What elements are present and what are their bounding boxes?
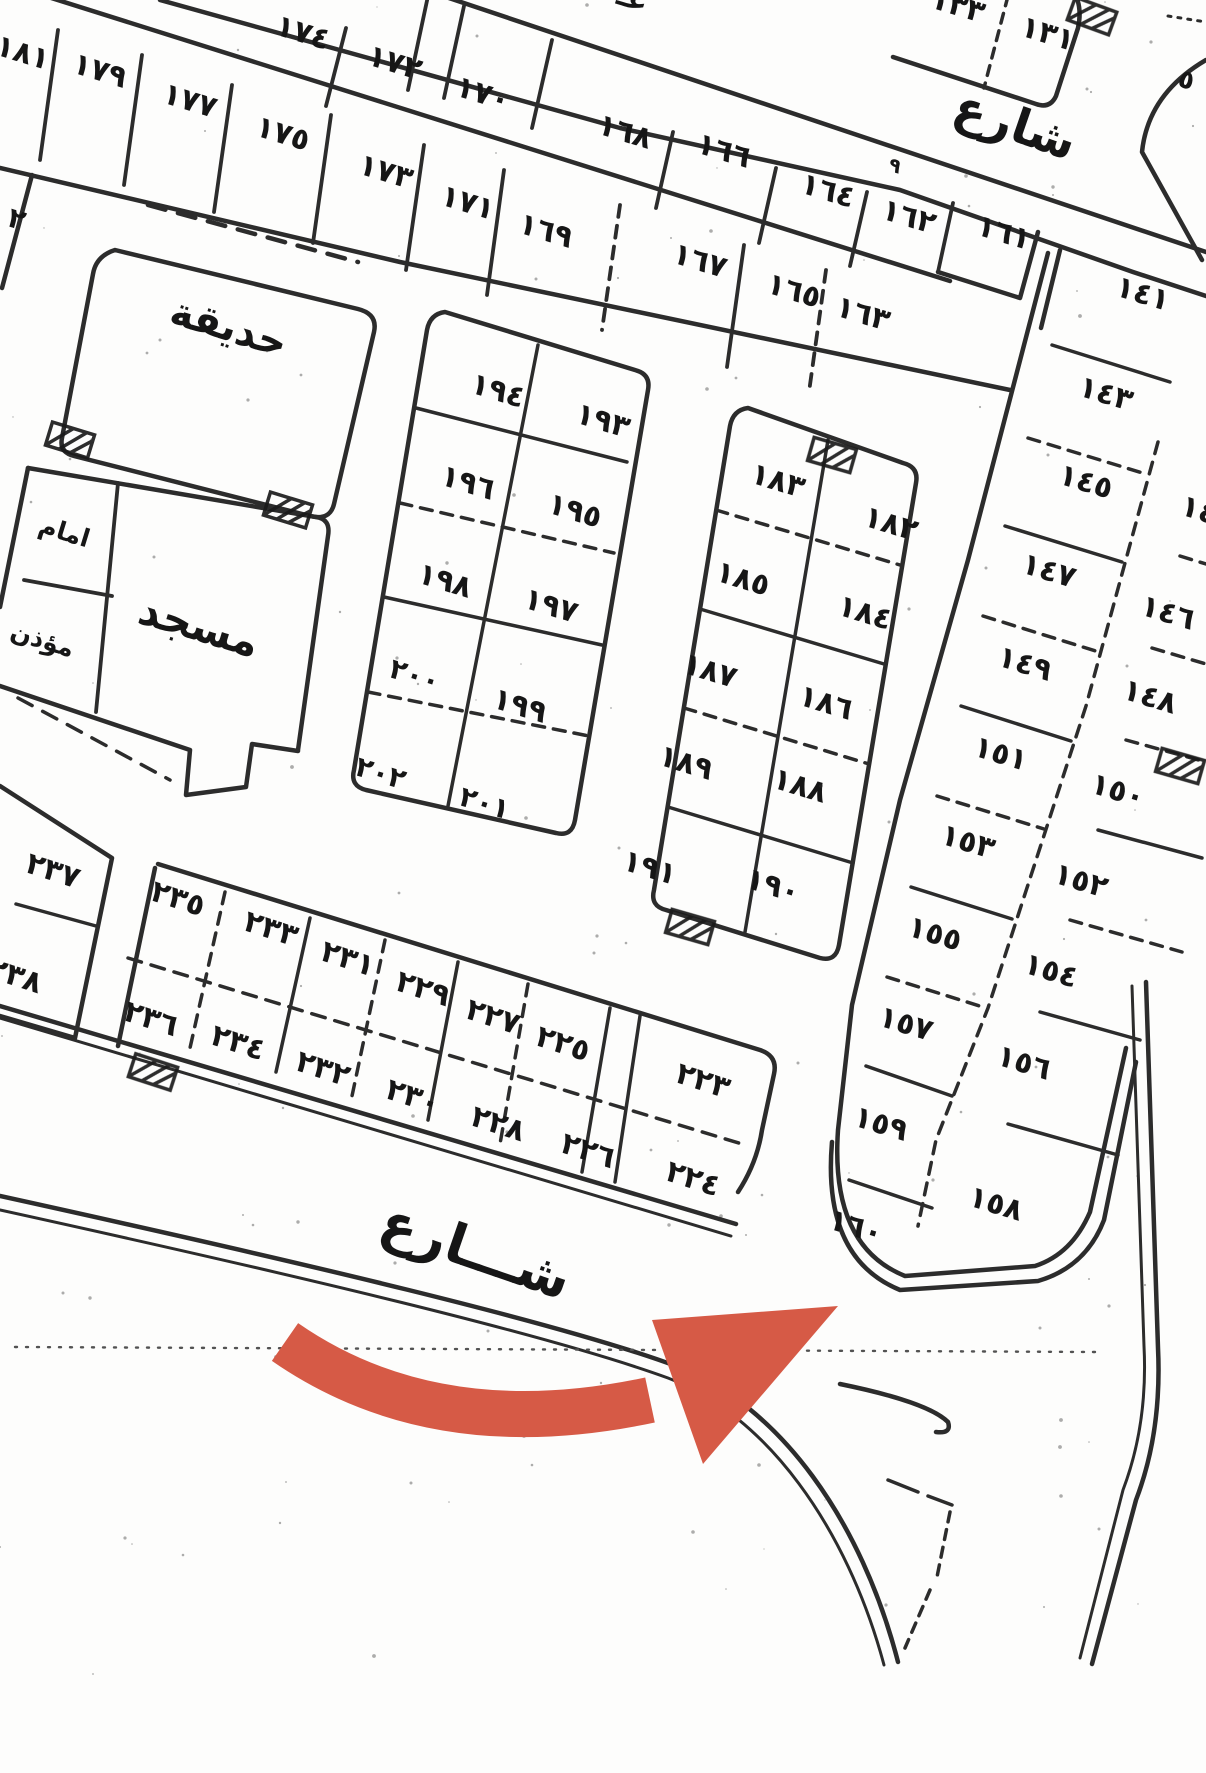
speckle-dot [763,1548,764,1549]
speckle-dot [282,1107,284,1109]
speckle-dot [1088,1441,1090,1443]
plot-divider [887,977,986,1008]
speckle-dot [585,3,589,7]
speckle-dot [1136,1175,1138,1177]
speckle-dot [1144,1284,1146,1286]
speckle-dot [758,241,760,243]
speckle-dot [69,458,72,461]
speckle-dot [393,1261,396,1264]
plot-156: ١٥٦ [992,1038,1055,1088]
street-label-top: شارع [947,78,1084,172]
plot-189: ١٨٩ [654,738,717,788]
speckle-dot [667,1223,670,1226]
plot-divider [1040,1012,1140,1040]
plot-164: ١٦٤ [796,166,859,216]
speckle-dot [691,1530,695,1534]
speckle-dot [716,167,717,168]
speckle-dot [907,607,910,610]
speckle-dot [398,255,400,257]
plot-191: ١٩١ [618,843,681,893]
plot-divider [16,904,96,926]
speckle-dot [617,277,619,279]
road-marking [888,1480,952,1505]
plot-divider [866,1066,952,1096]
garden-outline [62,250,375,517]
speckle-dot [705,387,709,391]
plot-185: ١٨٥ [711,554,774,604]
plot-divider [532,40,552,128]
speckle-dot [0,1546,1,1548]
speckle-dot [246,398,249,401]
plot-144-fragment: ١٤٤ [1176,488,1206,538]
mosque-outline [0,686,298,795]
plot-divider [313,115,331,243]
fragment-2: ٢ [4,201,30,238]
speckle-dot [1058,1445,1062,1449]
plot-160: ١٦٠ [824,1202,887,1252]
speckle-dot [30,501,33,504]
plot-166: ١٦٦ [692,126,755,176]
speckle-dot [372,1654,376,1658]
street-edge [0,1018,731,1236]
plot-146: ١٤٦ [1136,588,1199,638]
plot-divider [1180,556,1206,564]
plot-157: ١٥٧ [874,999,937,1049]
speckle-dot [735,377,738,380]
plot-170: ١٧٠ [451,69,514,119]
speckle-dot [1,1035,3,1037]
speckle-dot [863,259,865,261]
plot-divider [1008,1124,1118,1155]
street-edge [831,1062,1136,1290]
speckle-dot [266,350,269,353]
fragment-street-word: عـ [612,0,653,20]
scanned-map-page: ١٧٤١٧٢١٧٠١٦٨١٦٦١٦٤١٦٢١٦١١٨١١٧٩١٧٧١٧٥١٧٣١… [0,0,1206,1773]
speckle-dot [1086,88,1089,91]
plot-147: ١٤٧ [1017,546,1080,596]
plot-228: ٢٢٨ [466,1099,529,1149]
speckle-dot [129,142,130,143]
block-outline [1142,60,1206,260]
speckle-dot [610,707,612,709]
speckle-dot [677,1140,679,1142]
plot-198: ١٩٨ [413,556,476,606]
speckle-dot [88,1296,91,1299]
plot-divider [615,1016,640,1182]
speckle-dot [725,1588,727,1590]
speckle-dot [670,237,672,239]
plot-155: ١٥٥ [903,909,966,959]
speckle-dot [1169,600,1170,601]
speckle-dot [1076,290,1078,292]
street-edge [1092,982,1159,1664]
plot-divider [727,245,744,367]
plot-226: ٢٢٦ [556,1126,619,1176]
arrow-head [652,1306,838,1464]
speckle-dot [300,374,303,377]
plot-divider [1070,920,1182,952]
speckle-dot [395,656,398,659]
setback-dashed [148,205,358,262]
speckle-dot [1051,185,1054,188]
plot-236: ٢٣٦ [119,994,182,1044]
plot-197: ١٩٧ [519,581,582,631]
speckle-dot [524,816,528,820]
fragment-5: ٥ [1174,64,1198,97]
speckle-dot [487,1330,490,1333]
plot-divider [668,807,853,863]
speckle-dot [884,1603,887,1606]
plot-225: ٢٢٥ [531,1019,594,1069]
speckle-dot [398,892,401,895]
mosque-label: مسجد [133,585,265,668]
speckle-dot [505,1130,508,1133]
plot-divider [368,692,589,736]
speckle-dot [761,1194,764,1197]
plot-184: ١٨٤ [833,588,896,638]
plot-183: ١٨٣ [746,456,809,506]
speckle-dot [797,1062,800,1065]
speckle-dot [595,934,598,937]
speckle-dot [512,493,516,497]
speckle-dot [600,1382,602,1384]
plot-141: ١٤١ [1111,269,1174,319]
block-outline [0,786,112,1038]
plot-133: ١٣٣ [926,0,989,31]
street-dashed [18,698,170,780]
plot-200: ٢٠٠ [385,652,444,699]
street-edge [1080,986,1145,1658]
speckle-dot [964,174,968,178]
cadastral-map: ١٧٤١٧٢١٧٠١٦٨١٦٦١٦٤١٦٢١٦١١٨١١٧٩١٧٧١٧٥١٧٣١… [0,0,1206,1773]
plot-196: ١٩٦ [436,458,499,508]
plot-233: ٢٣٣ [239,904,302,954]
speckle-dot [204,130,206,132]
band-south-edge [0,168,1010,390]
speckle-dot [1134,809,1136,811]
speckle-dot [1039,1327,1042,1330]
speckle-dot [824,1499,825,1500]
plot-186: ١٨٦ [794,678,857,728]
speckle-dot [62,1292,65,1295]
speckle-dot [972,992,975,995]
speckle-dot [139,1052,140,1053]
fragment-9: ٩ [886,152,905,179]
plot-divider [1098,830,1202,858]
speckle-dot [290,765,294,769]
plot-174: ١٧٤ [271,8,334,58]
plot-158: ١٥٨ [964,1179,1027,1229]
speckle-dot [1035,1066,1038,1069]
speckle-dot [869,709,871,711]
row-divider [45,0,950,281]
speckle-dot [1059,1418,1063,1422]
speckle-dot [296,1220,299,1223]
plot-divider [602,205,620,330]
speckle-dot [960,1111,963,1114]
plot-224: ٢٢٤ [661,1154,724,1204]
plot-171: ١٧١ [436,178,499,228]
plot-193: ١٩٣ [571,396,634,446]
speckle-dot [300,985,302,987]
speckle-dot [1107,1304,1110,1307]
imam-room-label: امام [35,510,93,553]
speckle-dot [12,416,13,417]
speckle-dot [1059,1494,1063,1498]
speckle-dot [153,556,156,559]
speckle-dot [757,1463,761,1467]
speckle-dot [531,1464,534,1467]
road-marking [905,1512,950,1648]
speckle-dot [968,205,971,208]
speckle-dot [90,438,94,442]
plot-divider [487,170,504,295]
speckle-dot [410,1482,413,1485]
speckle-dot [131,1543,133,1545]
plot-199: ١٩٩ [488,681,551,731]
plot-223: ٢٢٣ [671,1056,734,1106]
plot-150: ١٥٠ [1086,766,1149,816]
plot-227: ٢٢٧ [461,992,524,1042]
dotted-line [1168,16,1206,22]
speckle-dot [775,933,777,935]
speckle-dot [1104,1,1106,3]
plot-237: ٢٣٧ [21,846,84,896]
speckle-dot [146,352,149,355]
plot-divider [1152,648,1206,664]
speckle-dot [159,339,162,342]
plot-229: ٢٢٩ [391,964,454,1014]
speckle-dot [745,1234,747,1236]
plot-175: ١٧٥ [251,109,314,159]
speckle-dot [1149,40,1152,43]
speckle-dot [593,952,596,955]
speckle-dot [1090,91,1092,93]
plot-181: ١٨١ [0,28,54,78]
plot-152: ١٥٢ [1049,856,1112,906]
street-label-bottom: شـــارع [373,1189,580,1313]
speckle-dot [1088,1278,1090,1280]
plot-232: ٢٣٢ [291,1044,354,1094]
plot-divider [984,0,1008,88]
speckle-dot [92,682,94,684]
plot-169: ١٦٩ [514,206,577,256]
plot-177: ١٧٧ [158,76,221,126]
plot-153: ١٥٣ [936,817,999,867]
plot-145: ١٤٥ [1054,457,1117,507]
speckle-dot [476,35,479,38]
speckle-dot [1107,1156,1110,1159]
speckle-dot [1043,1606,1045,1608]
plot-148: ١٤٨ [1118,672,1181,722]
speckle-dot [339,611,341,613]
speckle-dot [252,1224,255,1227]
plot-154: ١٥٤ [1019,946,1082,996]
speckle-dot [448,1501,450,1503]
street-edge [0,1210,884,1665]
speckle-dot [650,1149,653,1152]
plot-divider [759,168,776,243]
plot-201: ٢٠١ [455,780,514,827]
garden-label: حديقة [165,288,293,367]
plot-151: ١٥١ [969,729,1032,779]
dotted-line [15,1347,1095,1352]
speckle-dot [709,229,713,233]
plot-161: ١٦١ [972,208,1035,258]
speckle-dot [625,942,628,945]
speckle-dot [1052,194,1054,196]
plot-143: ١٤٣ [1074,369,1137,419]
speckle-dot [475,699,476,700]
speckle-dot [495,152,497,154]
plot-195: ١٩٥ [543,486,606,536]
plot-194: ١٩٤ [466,366,529,416]
speckle-dot [1047,454,1050,457]
speckle-dot [1078,314,1082,318]
plot-163: ١٦٣ [831,289,894,339]
speckle-dot [43,227,44,228]
speckle-dot [123,1536,126,1539]
speckle-dot [411,1114,415,1118]
speckle-dot [237,49,239,51]
plot-238-fragment: ٢٣٨ [0,951,46,1001]
plot-173: ١٧٣ [354,147,417,197]
plot-159: ١٥٩ [849,1099,912,1149]
speckle-dot [445,561,448,564]
speckle-dot [279,1522,281,1524]
speckle-dot [856,836,857,837]
speckle-dot [182,1554,185,1557]
speckle-dot [1126,665,1129,668]
room-divider [96,483,118,712]
speckle-dot [477,393,479,395]
speckle-dot [1137,1603,1138,1604]
plot-168: ١٦٨ [593,107,656,157]
speckle-dot [1063,938,1065,940]
speckle-dot [819,784,823,788]
road-marking [840,1384,949,1432]
plot-divider [656,132,673,208]
plot-234: ٢٣٤ [206,1018,269,1068]
plot-149: ١٤٩ [993,639,1056,689]
speckle-dot [285,1481,287,1483]
plot-235: ٢٣٥ [146,874,209,924]
speckle-dot [931,1178,934,1181]
speckle-dot [535,278,538,281]
speckle-dot [417,683,419,685]
muezzin-room-label: مؤذن [7,616,78,664]
speckle-dot [242,1214,244,1216]
speckle-dot [92,1673,94,1675]
plot-divider [938,203,953,272]
speckle-dot [888,821,891,824]
speckle-dot [376,6,377,7]
plot-divider [849,1180,932,1208]
speckle-dot [1098,1528,1101,1531]
plot-179: ١٧٩ [68,46,131,96]
speckle-dot [979,406,981,408]
speckle-dot [238,1083,240,1085]
speckle-dot [848,1172,849,1173]
plot-167: ١٦٧ [668,236,731,286]
plot-165: ١٦٥ [762,266,825,316]
speckle-dot [719,1214,723,1218]
speckle-dot [520,663,522,665]
mosque-outline [0,468,28,607]
plot-231: ٢٣١ [316,934,379,984]
speckle-dot [985,567,988,570]
speckle-dot [618,847,621,850]
speckle-dot [1145,919,1148,922]
speckle-dot [1192,125,1194,127]
room-divider [24,580,112,596]
